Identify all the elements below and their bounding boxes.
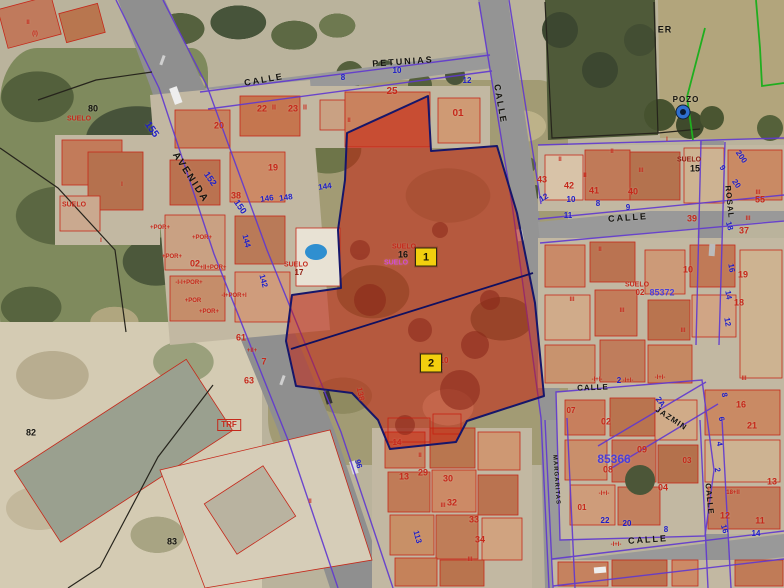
parcel-marker-1[interactable]: 1: [415, 248, 437, 267]
cadastral-overlay: [0, 0, 784, 588]
map-viewport[interactable]: PETUNIASCALLECALLEAVENIDACALLEROSALCALLE…: [0, 0, 784, 588]
well-icon: [676, 105, 690, 119]
parcel-marker-2[interactable]: 2: [420, 354, 442, 373]
